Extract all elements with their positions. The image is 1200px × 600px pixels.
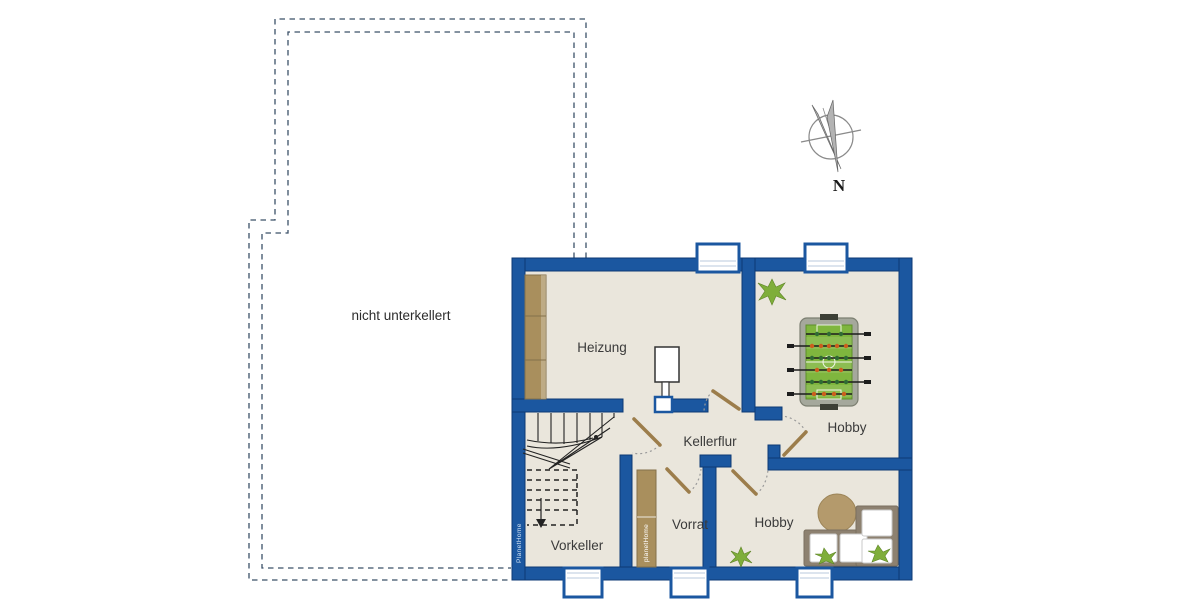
room-label-heizung: Heizung xyxy=(577,340,627,355)
room-label-vorkeller: Vorkeller xyxy=(551,538,604,553)
window-vorrat xyxy=(671,568,708,597)
vorrat-shelf: planetHome xyxy=(637,470,656,567)
wall-heizung-hobby xyxy=(742,258,755,412)
window-vorkeller xyxy=(564,568,602,597)
shelf-brand-text: planetHome xyxy=(643,524,650,562)
basement-floor-plan: nicht unterkellert N xyxy=(0,0,1200,600)
wall-hobby-divider xyxy=(768,458,912,470)
goal-bottom xyxy=(820,404,838,410)
compass: N xyxy=(801,100,861,195)
goal-top xyxy=(820,314,838,320)
floor-plan-page: nicht unterkellert N xyxy=(0,0,1200,600)
room-label-hobby-lower: Hobby xyxy=(754,515,793,530)
foosball-table xyxy=(787,314,871,410)
wall-heizung-south-left xyxy=(512,399,623,412)
window-hobby-lower xyxy=(797,568,832,597)
room-label-vorrat: Vorrat xyxy=(672,517,708,532)
compass-north-label: N xyxy=(833,176,846,195)
wall-brand-text: PlanetHome xyxy=(516,523,523,563)
wall-heizung-south-right xyxy=(671,399,708,412)
window-heizung xyxy=(697,244,739,272)
heizung-shelf xyxy=(525,275,546,399)
round-rug xyxy=(818,494,856,532)
window-hobby-upper xyxy=(805,244,847,272)
room-label-kellerflur: Kellerflur xyxy=(683,434,737,449)
wall-vorkeller-vorrat xyxy=(620,455,632,567)
not-basemented-label: nicht unterkellert xyxy=(351,308,450,323)
room-label-hobby-upper: Hobby xyxy=(827,420,866,435)
